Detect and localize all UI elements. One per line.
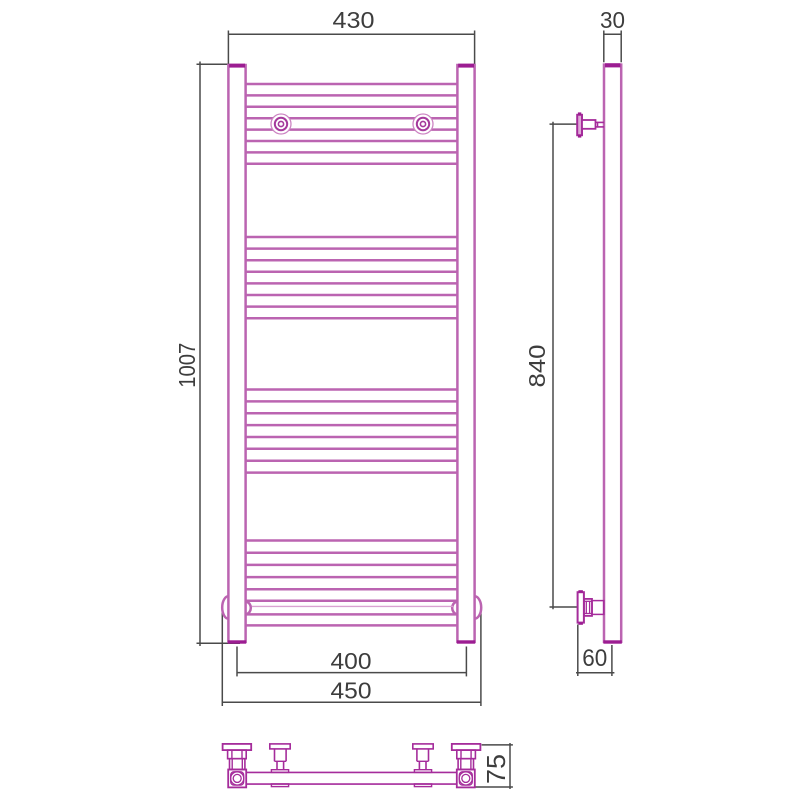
svg-text:30: 30 xyxy=(600,7,625,33)
svg-text:60: 60 xyxy=(582,645,607,672)
svg-text:75: 75 xyxy=(481,754,511,784)
svg-text:430: 430 xyxy=(333,7,375,33)
svg-text:840: 840 xyxy=(524,345,550,388)
svg-text:1007: 1007 xyxy=(174,343,200,388)
svg-text:450: 450 xyxy=(331,678,372,704)
svg-text:400: 400 xyxy=(331,648,372,674)
